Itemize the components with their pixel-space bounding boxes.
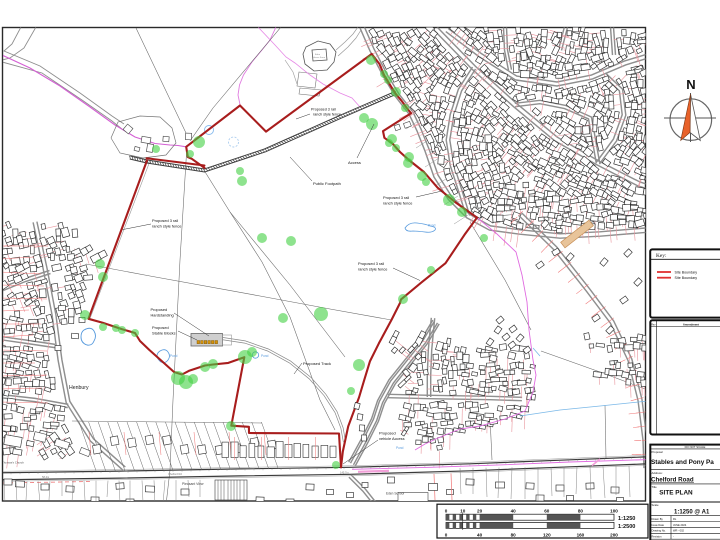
svg-text:N: N — [686, 77, 695, 92]
svg-text:80: 80 — [578, 508, 584, 513]
svg-text:DO NOT SCALE: DO NOT SCALE — [685, 445, 706, 449]
svg-text:JUNE 2024: JUNE 2024 — [673, 523, 687, 527]
svg-text:Proposed: Proposed — [379, 431, 396, 436]
svg-text:58.4m: 58.4m — [42, 475, 49, 479]
svg-text:Drawn By: Drawn By — [652, 517, 664, 521]
svg-text:Thomas's Church: Thomas's Church — [2, 461, 24, 465]
svg-text:Key:: Key: — [656, 253, 667, 259]
svg-text:Public Footpath: Public Footpath — [313, 181, 341, 186]
svg-text:Proposed 3 rail: Proposed 3 rail — [358, 261, 384, 266]
svg-text:Pond: Pond — [261, 354, 269, 358]
svg-text:Proposed 3 rail: Proposed 3 rail — [152, 218, 178, 223]
svg-text:Proposed 3 rail: Proposed 3 rail — [383, 195, 409, 200]
svg-text:Revision: Revision — [652, 535, 663, 539]
svg-text:40: 40 — [511, 508, 517, 513]
svg-text:Proposed 3 rail: Proposed 3 rail — [311, 108, 336, 112]
svg-text:ranch style fence: ranch style fence — [358, 267, 387, 272]
svg-text:RL: RL — [673, 517, 677, 521]
svg-text:60: 60 — [544, 508, 550, 513]
svg-text:Henbury: Henbury — [69, 385, 89, 391]
svg-text:Issue Date: Issue Date — [652, 523, 665, 527]
svg-text:Site Boundary: Site Boundary — [675, 276, 698, 280]
svg-text:Pond: Pond — [396, 446, 404, 450]
svg-text:Proposed: Proposed — [152, 325, 169, 330]
svg-text:160: 160 — [577, 532, 585, 537]
svg-text:200: 200 — [610, 532, 618, 537]
svg-text:Scale: Scale — [652, 503, 659, 507]
svg-text:vehicle Access: vehicle Access — [379, 436, 405, 441]
svg-text:20: 20 — [477, 508, 483, 513]
svg-text:Proposed Track: Proposed Track — [303, 361, 331, 366]
svg-text:Stable Blocks: Stable Blocks — [152, 331, 176, 336]
svg-text:Chelford Rd: Chelford Rd — [168, 472, 182, 476]
svg-text:Site Boundary: Site Boundary — [675, 271, 698, 275]
svg-text:-: - — [673, 536, 674, 539]
svg-text:House Farm: House Farm — [313, 56, 325, 59]
svg-text:Address:: Address: — [652, 471, 663, 475]
svg-text:1:2500: 1:2500 — [618, 524, 635, 530]
svg-text:80: 80 — [511, 532, 517, 537]
svg-text:ranch style fence: ranch style fence — [313, 113, 341, 117]
svg-text:40: 40 — [477, 532, 483, 537]
svg-text:Stables and Pony Pa: Stables and Pony Pa — [651, 459, 714, 466]
svg-text:100: 100 — [610, 508, 618, 513]
svg-text:Pond: Pond — [170, 354, 178, 358]
svg-text:10: 10 — [460, 508, 466, 513]
svg-text:1:1250: 1:1250 — [618, 516, 635, 522]
svg-text:Access: Access — [348, 160, 361, 165]
svg-text:WR - 002: WR - 002 — [673, 529, 685, 533]
svg-text:Eden School: Eden School — [386, 492, 404, 496]
svg-text:Drawing No.: Drawing No. — [652, 529, 667, 533]
svg-text:SITE PLAN: SITE PLAN — [659, 490, 693, 497]
svg-text:ranch style fence: ranch style fence — [152, 224, 181, 229]
svg-text:Title: Title — [652, 485, 658, 489]
svg-text:Pond: Pond — [428, 224, 436, 228]
svg-text:0: 0 — [445, 532, 448, 537]
svg-text:Amendment: Amendment — [683, 323, 699, 327]
svg-text:Proposal: Proposal — [652, 450, 663, 454]
svg-text:145.7m: 145.7m — [340, 471, 349, 475]
svg-text:0: 0 — [445, 508, 448, 513]
svg-text:Hardstanding: Hardstanding — [151, 313, 174, 318]
svg-text:120: 120 — [543, 532, 551, 537]
svg-text:ranch style fence: ranch style fence — [383, 201, 412, 206]
svg-text:Eden: Eden — [315, 54, 321, 56]
svg-text:Pleasant View: Pleasant View — [182, 482, 204, 486]
svg-text:Proposed: Proposed — [151, 307, 168, 312]
svg-text:1:1250 @ A1: 1:1250 @ A1 — [674, 509, 710, 515]
